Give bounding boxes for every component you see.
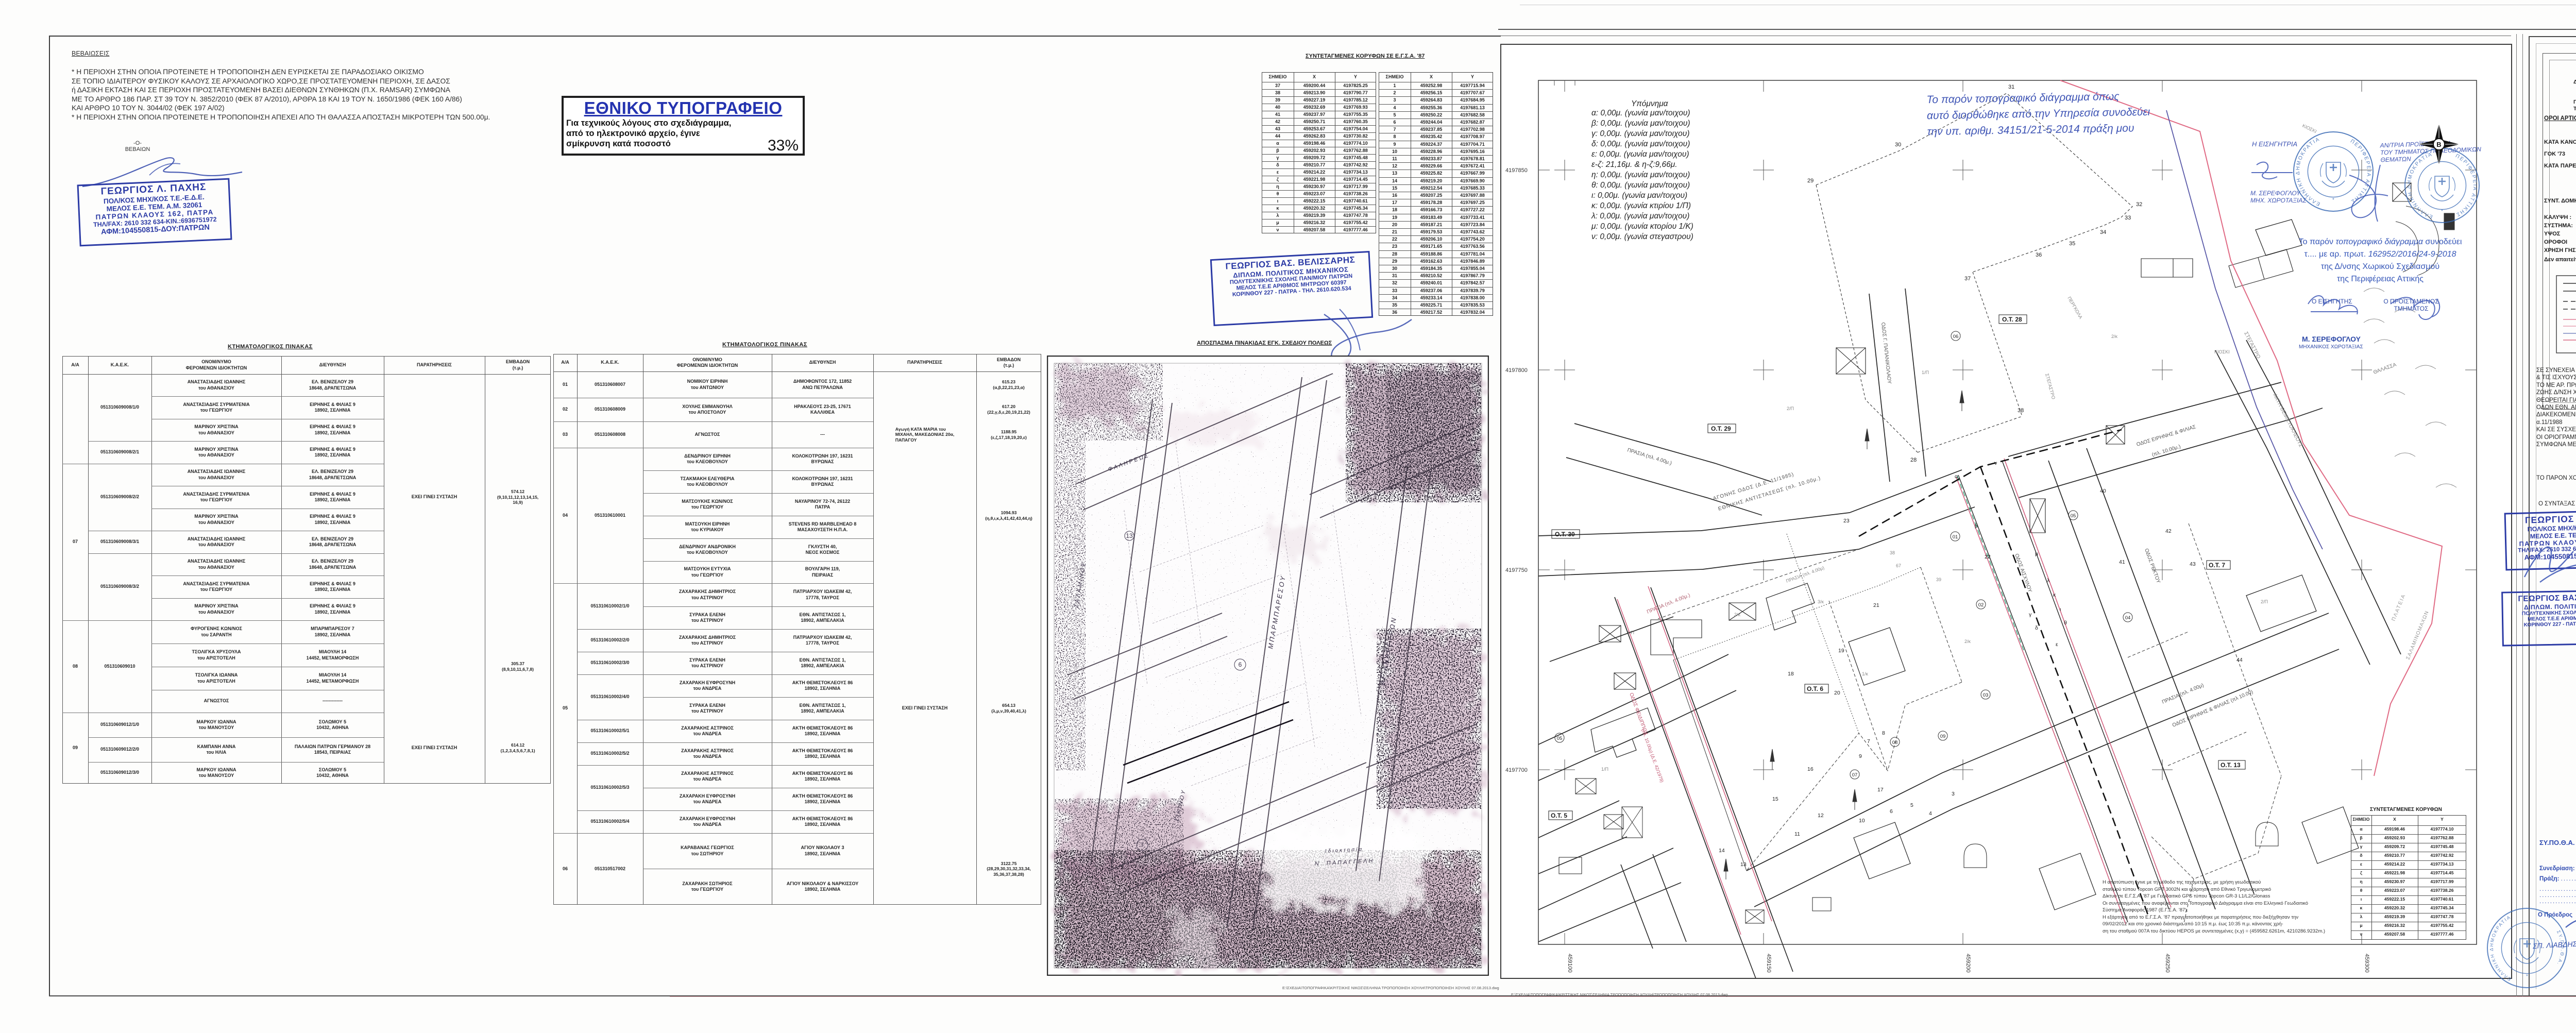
svg-text:2/Π: 2/Π <box>2261 599 2268 604</box>
svg-text:Ο.Τ. 28: Ο.Τ. 28 <box>2002 316 2022 323</box>
svg-text:07: 07 <box>1852 772 1858 778</box>
svg-text:44: 44 <box>2236 657 2243 663</box>
svg-text:16: 16 <box>1807 766 1814 772</box>
svg-text:13: 13 <box>1126 532 1133 539</box>
svg-text:12: 12 <box>1818 812 1824 819</box>
svg-text:06: 06 <box>1953 334 1959 340</box>
svg-text:1/Π: 1/Π <box>1922 370 1929 375</box>
svg-text:40: 40 <box>2100 488 2106 494</box>
svg-text:32: 32 <box>2136 201 2142 208</box>
svg-text:30: 30 <box>1895 142 1901 148</box>
svg-text:4197750: 4197750 <box>1505 567 1528 573</box>
svg-text:36: 36 <box>2036 252 2042 258</box>
svg-text:Ο.Τ. 6: Ο.Τ. 6 <box>1807 685 1823 692</box>
svg-text:42: 42 <box>2165 528 2172 534</box>
svg-text:21: 21 <box>1873 602 1879 608</box>
svg-text:β: 0,00μ. (γωνία μαν/τοιχου): β: 0,00μ. (γωνία μαν/τοιχου) <box>1591 119 1690 128</box>
svg-text:2/κ: 2/κ <box>1734 612 1741 617</box>
svg-text:6: 6 <box>1239 661 1242 668</box>
svg-text:Ο.Τ. 7: Ο.Τ. 7 <box>2209 562 2225 569</box>
svg-text:35: 35 <box>2069 241 2075 247</box>
svg-text:459300: 459300 <box>2364 954 2370 973</box>
svg-text:2/κ: 2/κ <box>1964 639 1971 644</box>
svg-text:1/П: 1/П <box>1601 767 1608 772</box>
svg-text:ε: ε <box>2056 641 2058 648</box>
svg-text:8: 8 <box>1882 730 1885 736</box>
svg-text:Ο.Τ. 30: Ο.Τ. 30 <box>1555 531 1575 538</box>
svg-text:459100: 459100 <box>1567 954 1573 973</box>
svg-text:λ: 0,00μ. (γωνία μαν/τοιχου): λ: 0,00μ. (γωνία μαν/τοιχου) <box>1591 212 1689 221</box>
svg-text:38: 38 <box>2018 408 2024 414</box>
svg-text:3/κ: 3/κ <box>1818 599 1824 604</box>
svg-text:θ: θ <box>2064 620 2067 626</box>
svg-text:04: 04 <box>2125 615 2131 621</box>
svg-text:ΕΛΛΗΝΙΚΗ ΔΗΜΟΚΡΑΤΙΑ: ΕΛΛΗΝΙΚΗ ΔΗΜΟΚΡΑΤΙΑ <box>2489 914 2512 981</box>
svg-text:22: 22 <box>1985 554 1991 560</box>
svg-text:1/κ: 1/κ <box>1862 671 1869 676</box>
svg-text:10: 10 <box>1859 818 1865 824</box>
svg-text:Ο.Τ. 29: Ο.Τ. 29 <box>1711 425 1731 432</box>
svg-text:459200: 459200 <box>1965 954 1971 973</box>
svg-text:δ: 0,00μ. (γωνία μαν/τοιχου): δ: 0,00μ. (γωνία μαν/τοιχου) <box>1591 140 1690 148</box>
svg-text:μ: 0,00μ. (γωνία κτορίου 1/Κ): μ: 0,00μ. (γωνία κτορίου 1/Κ) <box>1591 222 1693 231</box>
svg-text:Υπόμνημα: Υπόμνημα <box>1631 99 1669 108</box>
svg-text:7: 7 <box>1867 738 1870 744</box>
svg-text:α: 0,00μ. (γωνία μαν/τοιχου): α: 0,00μ. (γωνία μαν/τοιχου) <box>1591 109 1690 117</box>
svg-text:*: * <box>2526 974 2528 979</box>
svg-text:41: 41 <box>2119 559 2125 565</box>
svg-text:31: 31 <box>2008 84 2014 90</box>
svg-text:08: 08 <box>1892 740 1898 746</box>
svg-text:29: 29 <box>1807 178 1814 184</box>
svg-text:03: 03 <box>1983 692 1989 698</box>
svg-text:39: 39 <box>1936 577 1941 582</box>
svg-text:4: 4 <box>1929 810 1932 817</box>
svg-text:3: 3 <box>1952 791 1955 797</box>
svg-text:459250: 459250 <box>2164 954 2171 973</box>
svg-text:01: 01 <box>1953 534 1958 540</box>
svg-text:Ο.Τ. 13: Ο.Τ. 13 <box>2221 761 2241 769</box>
svg-text:11: 11 <box>1794 831 1800 837</box>
svg-text:28: 28 <box>1910 457 1917 463</box>
svg-text:13: 13 <box>1740 861 1747 868</box>
svg-text:4197800: 4197800 <box>1505 367 1528 374</box>
svg-text:15: 15 <box>1772 796 1778 802</box>
svg-text:18: 18 <box>1788 671 1794 677</box>
svg-text:ν: ν <box>1994 460 1997 466</box>
svg-text:43: 43 <box>2190 561 2196 567</box>
svg-text:λ: λ <box>2047 578 2050 584</box>
svg-text:23: 23 <box>1843 518 1850 524</box>
svg-text:ν: 0,00μ. (γωνία στεγαστρου): ν: 0,00μ. (γωνία στεγαστρου) <box>1591 232 1693 241</box>
svg-text:γ: 0,00μ. (γωνία μαν/τοιχου): γ: 0,00μ. (γωνία μαν/τοιχου) <box>1591 129 1690 138</box>
svg-text:4197700: 4197700 <box>1505 767 1528 773</box>
svg-text:Ο.Τ. 5: Ο.Τ. 5 <box>1551 812 1567 819</box>
svg-text:ε: 0,00μ. (γωνία μαν/τοιχου): ε: 0,00μ. (γωνία μαν/τοιχου) <box>1591 150 1689 159</box>
svg-text:14: 14 <box>1719 848 1725 854</box>
svg-text:9: 9 <box>1859 753 1862 759</box>
svg-text:β: β <box>1975 523 1978 529</box>
svg-text:05: 05 <box>2071 513 2076 519</box>
svg-text:2/κ: 2/κ <box>2111 334 2118 339</box>
svg-text:ε-ζ: 21,16μ. & η-ζ:9,66μ.: ε-ζ: 21,16μ. & η-ζ:9,66μ. <box>1591 160 1677 169</box>
svg-text:μ: μ <box>2035 551 2038 557</box>
svg-text:ι: 0,00μ. (γωνία μαν/τοιχου): ι: 0,00μ. (γωνία μαν/τοιχου) <box>1591 191 1687 200</box>
svg-text:κ: κ <box>2053 592 2056 598</box>
svg-text:ΚΙΟΣΚΙ: ΚΙΟΣΚΙ <box>2214 349 2230 354</box>
svg-text:09: 09 <box>1940 734 1946 739</box>
svg-text:5: 5 <box>1910 802 1913 808</box>
svg-text:459150: 459150 <box>1766 954 1772 973</box>
svg-text:η: 0,00μ. (γωνία μαν/τοιχου): η: 0,00μ. (γωνία μαν/τοιχου) <box>1591 171 1690 179</box>
svg-text:05: 05 <box>1557 736 1563 741</box>
svg-text:θ: 0,00μ. (γωνία μαν/τοιχου): θ: 0,00μ. (γωνία μαν/τοιχου) <box>1591 181 1690 190</box>
svg-text:19: 19 <box>1838 648 1844 654</box>
svg-text:7: 7 <box>1141 841 1144 849</box>
svg-text:4197850: 4197850 <box>1505 167 1528 174</box>
svg-text:38: 38 <box>1890 550 1895 555</box>
svg-text:02: 02 <box>1978 602 1984 608</box>
svg-text:6: 6 <box>1890 808 1893 815</box>
svg-text:δ: δ <box>2035 625 2038 631</box>
svg-text:20: 20 <box>1834 690 1840 696</box>
svg-text:17: 17 <box>1877 787 1884 793</box>
svg-text:34: 34 <box>2100 229 2106 235</box>
svg-text:κ: 0,00μ. (γωνία κτιρίου 1/Π): κ: 0,00μ. (γωνία κτιρίου 1/Π) <box>1591 201 1691 210</box>
svg-text:67: 67 <box>1896 563 1901 568</box>
svg-text:γ: γ <box>2029 612 2032 618</box>
svg-text:37: 37 <box>1964 276 1971 282</box>
svg-text:α: α <box>1955 473 1958 480</box>
svg-text:33: 33 <box>2125 215 2131 221</box>
svg-text:2/Π: 2/Π <box>1787 406 1794 411</box>
